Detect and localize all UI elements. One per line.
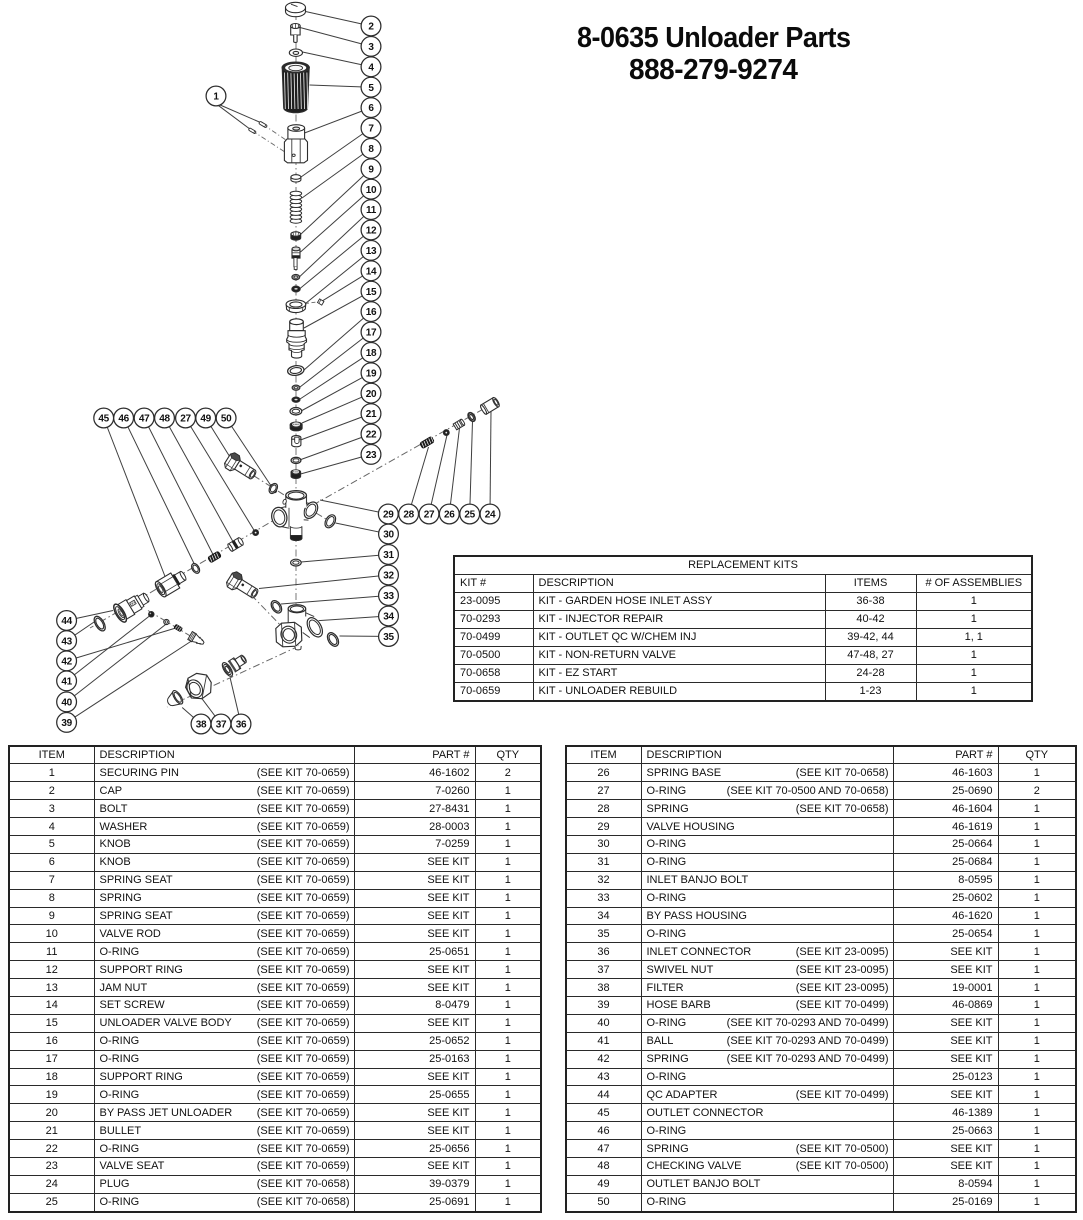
svg-text:48: 48 [159, 414, 170, 425]
svg-text:25: 25 [464, 510, 475, 521]
svg-text:15: 15 [366, 287, 377, 298]
svg-text:6: 6 [368, 103, 374, 114]
svg-text:47: 47 [139, 414, 150, 425]
svg-text:33: 33 [383, 591, 394, 602]
svg-text:28: 28 [403, 510, 414, 521]
svg-text:16: 16 [366, 307, 377, 318]
svg-text:18: 18 [366, 348, 377, 359]
svg-text:13: 13 [366, 246, 377, 257]
svg-text:29: 29 [383, 510, 394, 521]
svg-text:40: 40 [61, 697, 72, 708]
svg-text:36: 36 [236, 720, 247, 731]
svg-text:34: 34 [383, 612, 394, 623]
svg-text:43: 43 [61, 636, 72, 647]
svg-text:26: 26 [444, 510, 455, 521]
svg-text:27: 27 [424, 510, 435, 521]
svg-text:49: 49 [200, 414, 211, 425]
svg-text:4: 4 [368, 62, 374, 73]
svg-text:2: 2 [368, 22, 374, 33]
svg-text:37: 37 [216, 720, 227, 731]
svg-text:35: 35 [383, 632, 394, 643]
svg-text:23: 23 [366, 450, 377, 461]
svg-text:10: 10 [366, 185, 377, 196]
svg-text:30: 30 [383, 530, 394, 541]
svg-text:1: 1 [213, 92, 219, 103]
svg-text:19: 19 [366, 368, 377, 379]
svg-text:42: 42 [61, 656, 72, 667]
svg-text:14: 14 [366, 266, 377, 277]
svg-text:22: 22 [366, 430, 377, 441]
svg-text:7: 7 [368, 124, 374, 135]
svg-text:32: 32 [383, 571, 394, 582]
svg-text:44: 44 [61, 616, 72, 627]
svg-text:31: 31 [383, 550, 394, 561]
svg-text:12: 12 [366, 226, 377, 237]
svg-text:9: 9 [368, 164, 374, 175]
svg-text:50: 50 [221, 414, 232, 425]
svg-text:45: 45 [98, 414, 109, 425]
svg-text:17: 17 [366, 328, 377, 339]
svg-text:11: 11 [366, 205, 377, 216]
svg-text:27: 27 [180, 414, 191, 425]
svg-text:5: 5 [368, 83, 374, 94]
svg-text:24: 24 [485, 510, 496, 521]
svg-text:46: 46 [118, 414, 129, 425]
svg-text:41: 41 [61, 676, 72, 687]
svg-text:39: 39 [61, 718, 72, 729]
svg-text:21: 21 [366, 409, 377, 420]
svg-text:3: 3 [368, 42, 374, 53]
svg-text:38: 38 [196, 720, 207, 731]
svg-text:8: 8 [368, 144, 374, 155]
svg-text:20: 20 [366, 389, 377, 400]
